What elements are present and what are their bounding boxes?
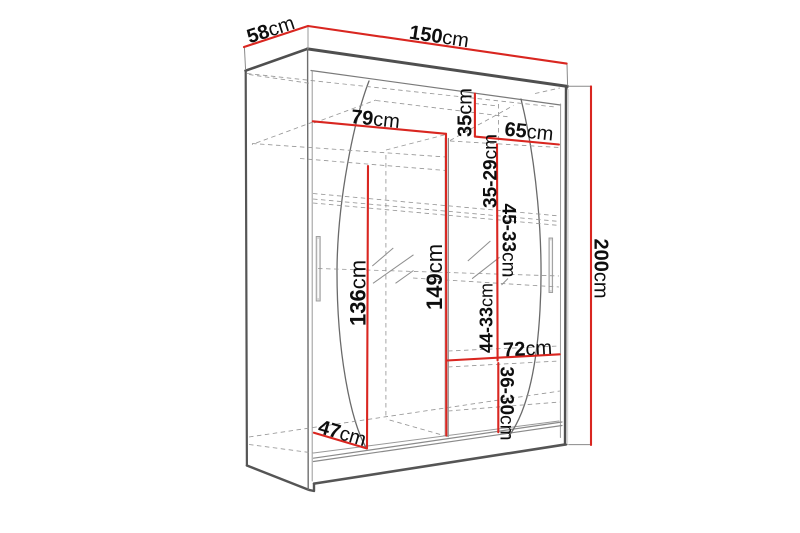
svg-text:45-33cm: 45-33cm xyxy=(498,204,519,278)
svg-text:149cm: 149cm xyxy=(422,244,447,310)
svg-text:35cm: 35cm xyxy=(455,88,477,137)
svg-text:44-33cm: 44-33cm xyxy=(477,283,497,353)
svg-text:35-29cm: 35-29cm xyxy=(481,134,502,208)
svg-text:200cm: 200cm xyxy=(590,239,612,299)
svg-text:36-30cm: 36-30cm xyxy=(496,367,517,441)
svg-text:136cm: 136cm xyxy=(346,260,371,326)
svg-text:72cm: 72cm xyxy=(503,337,553,362)
